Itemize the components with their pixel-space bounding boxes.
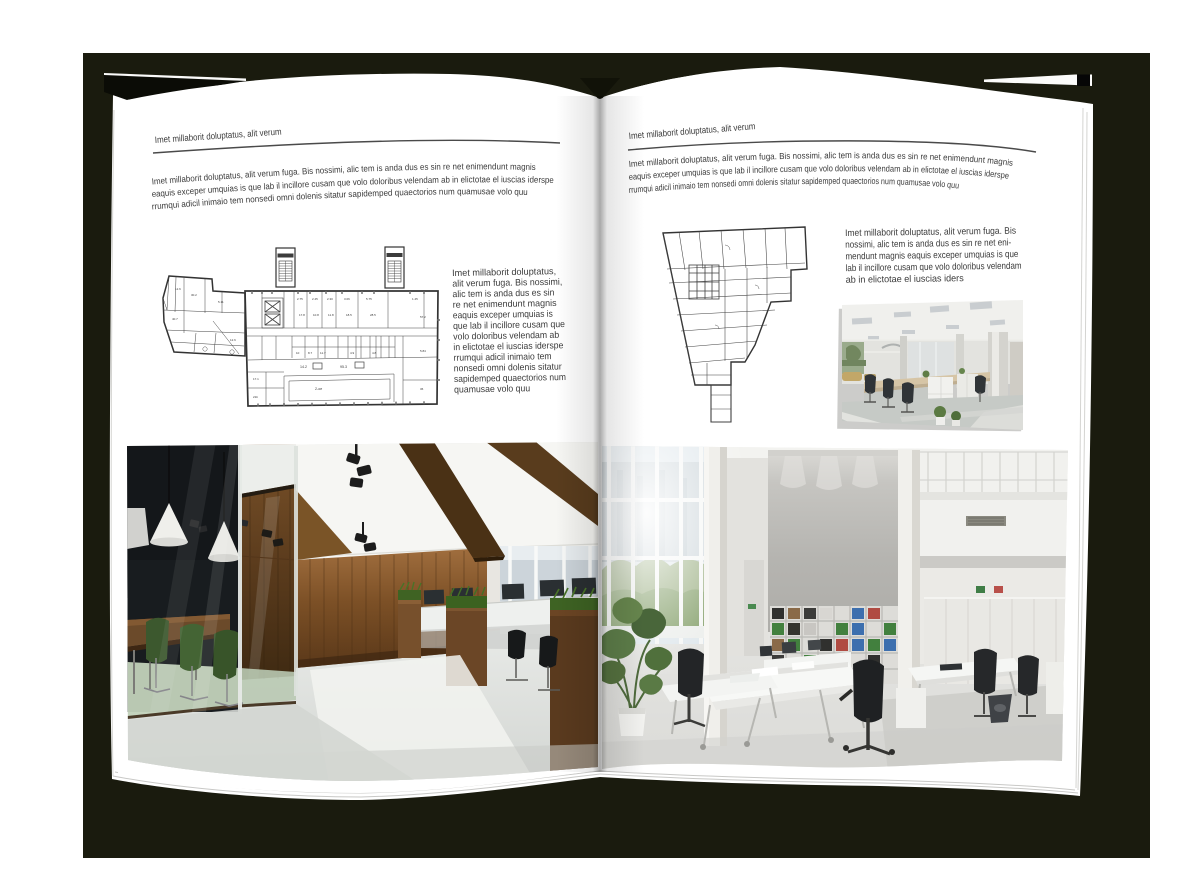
- svg-text:11.7: 11.7: [320, 351, 326, 355]
- svg-text:18.5: 18.5: [346, 313, 352, 317]
- svg-text:1.45: 1.45: [412, 297, 418, 301]
- svg-text:17.8: 17.8: [299, 313, 305, 317]
- svg-text:5.11: 5.11: [218, 300, 224, 304]
- svg-text:4.9: 4.9: [350, 351, 355, 355]
- svg-text:17.1: 17.1: [253, 377, 259, 381]
- svg-text:57.2: 57.2: [420, 315, 426, 319]
- svg-text:2-oe: 2-oe: [315, 387, 322, 391]
- svg-text:8.7: 8.7: [308, 351, 313, 355]
- svg-text:quamusae volo quu: quamusae volo quu: [454, 383, 530, 394]
- svg-text:sapidemped quaectorios num: sapidemped quaectorios num: [454, 372, 566, 384]
- svg-text:40.7: 40.7: [172, 317, 178, 321]
- svg-text:11.8: 11.8: [328, 313, 334, 317]
- svg-text:12.6: 12.6: [175, 287, 181, 291]
- svg-text:2.75: 2.75: [297, 297, 303, 301]
- svg-text:36: 36: [420, 387, 424, 391]
- svg-text:28.5: 28.5: [370, 313, 376, 317]
- svg-text:95.3: 95.3: [340, 365, 347, 369]
- svg-text:10.8: 10.8: [313, 313, 319, 317]
- svg-text:5.84: 5.84: [420, 349, 426, 353]
- svg-text:4.8: 4.8: [372, 351, 377, 355]
- svg-text:14.2: 14.2: [300, 365, 307, 369]
- svg-text:21b: 21b: [253, 395, 258, 399]
- svg-text:ab in elictotae el iuscias ide: ab in elictotae el iuscias iders: [846, 272, 964, 285]
- svg-text:10: 10: [296, 351, 300, 355]
- svg-text:30.2: 30.2: [191, 293, 197, 297]
- svg-text:3.06: 3.06: [344, 297, 350, 301]
- svg-text:12.6: 12.6: [230, 338, 236, 342]
- svg-text:5.75: 5.75: [366, 297, 372, 301]
- svg-text:2.45: 2.45: [312, 297, 318, 301]
- svg-text:2.30: 2.30: [327, 297, 333, 301]
